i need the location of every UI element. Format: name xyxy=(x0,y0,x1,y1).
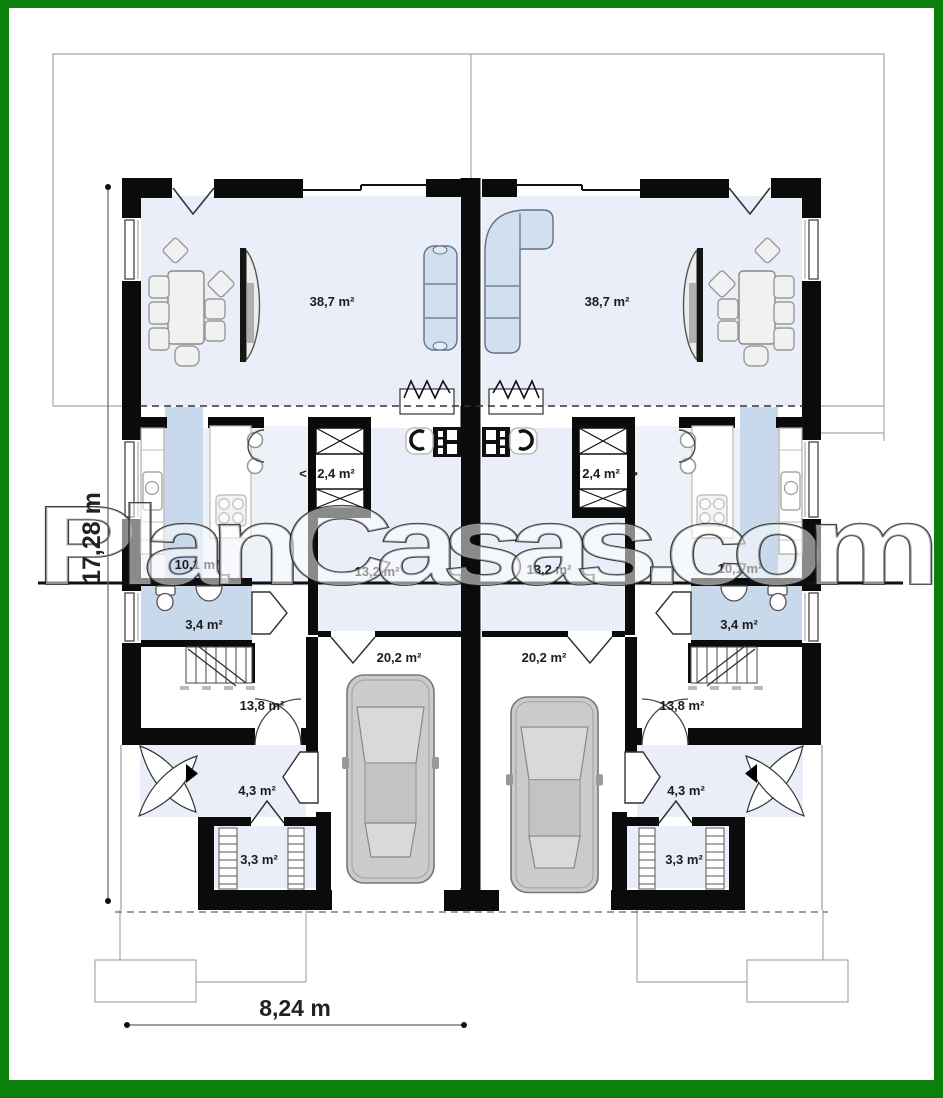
svg-text:17,28 m: 17,28 m xyxy=(78,492,106,584)
svg-text:>: > xyxy=(630,466,638,481)
svg-text:3,3 m²: 3,3 m² xyxy=(240,852,278,867)
svg-text:4,3 m²: 4,3 m² xyxy=(238,783,276,798)
svg-text:3,4 m²: 3,4 m² xyxy=(720,617,758,632)
svg-text:<: < xyxy=(299,466,307,481)
svg-text:20,2 m²: 20,2 m² xyxy=(522,650,567,665)
svg-text:PlanCasas.com: PlanCasas.com xyxy=(36,484,941,609)
svg-text:20,2 m²: 20,2 m² xyxy=(377,650,422,665)
svg-text:2,4 m²: 2,4 m² xyxy=(582,466,620,481)
svg-text:2,4 m²: 2,4 m² xyxy=(317,466,355,481)
svg-text:38,7 m²: 38,7 m² xyxy=(310,294,355,309)
svg-text:13,8 m²: 13,8 m² xyxy=(240,698,285,713)
svg-text:13,8 m²: 13,8 m² xyxy=(660,698,705,713)
svg-text:38,7 m²: 38,7 m² xyxy=(585,294,630,309)
svg-text:8,24 m: 8,24 m xyxy=(259,995,331,1021)
svg-text:4,3 m²: 4,3 m² xyxy=(667,783,705,798)
svg-text:3,4 m²: 3,4 m² xyxy=(185,617,223,632)
svg-text:3,3 m²: 3,3 m² xyxy=(665,852,703,867)
